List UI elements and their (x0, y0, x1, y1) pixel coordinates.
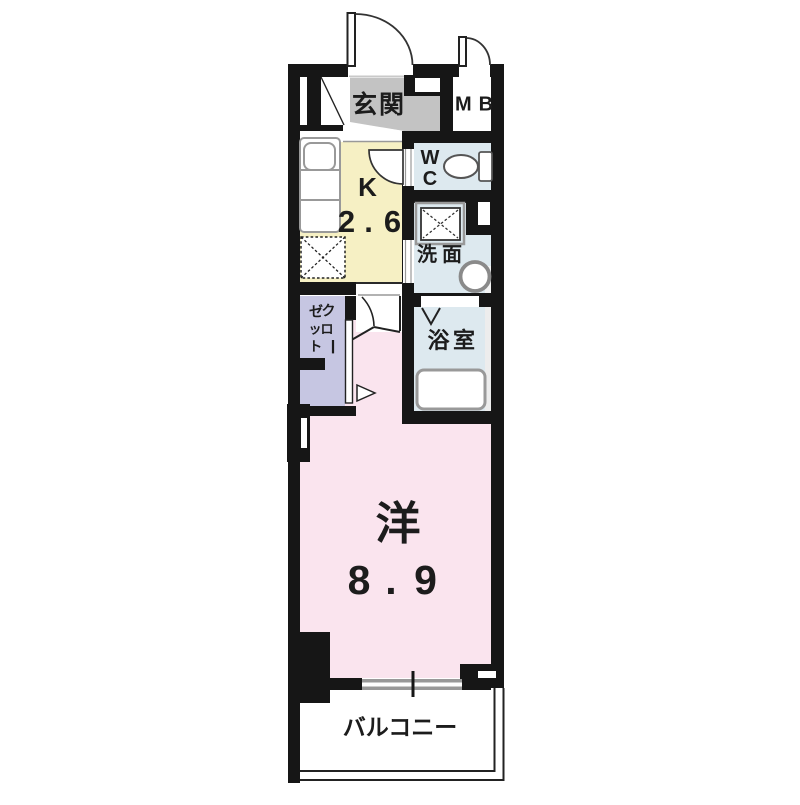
svg-text:8: 8 (348, 557, 371, 603)
svg-text:.: . (364, 204, 373, 239)
svg-text:9: 9 (414, 557, 437, 603)
svg-text:浴室: 浴室 (427, 328, 478, 353)
svg-text:洗面: 洗面 (417, 243, 467, 266)
svg-text:2: 2 (338, 204, 355, 239)
svg-text:C: C (423, 168, 437, 190)
svg-text:6: 6 (384, 204, 401, 239)
svg-text:洋: 洋 (375, 498, 420, 549)
svg-text:ク: ク (322, 303, 336, 319)
svg-text:バルコニー: バルコニー (343, 714, 458, 740)
svg-text:.: . (385, 557, 396, 603)
svg-text:K: K (358, 172, 377, 202)
svg-text:ロ: ロ (320, 322, 333, 337)
svg-text:ト: ト (309, 339, 323, 354)
svg-text:玄関: 玄関 (352, 90, 406, 119)
svg-text:MB: MB (455, 94, 500, 116)
svg-text:ゼ: ゼ (309, 304, 323, 320)
svg-text:W: W (421, 147, 440, 169)
svg-text:ッ: ッ (308, 322, 321, 337)
